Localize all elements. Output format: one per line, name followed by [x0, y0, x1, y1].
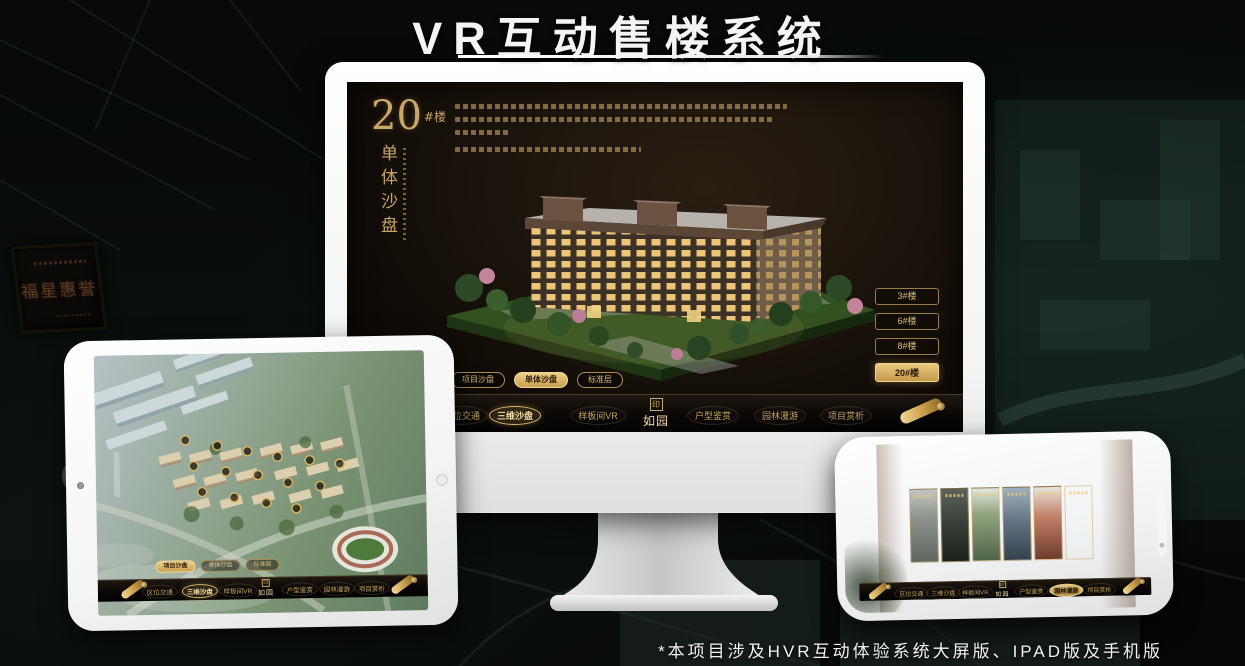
scroll-ornament-right-icon[interactable] — [390, 574, 416, 596]
nav-item-garden-tour[interactable]: 园林漫游 — [754, 406, 806, 425]
plaque-small-line — [34, 260, 86, 266]
title-underline — [458, 55, 884, 58]
nav-item-model-room-vr[interactable]: 样板间VR — [570, 406, 626, 425]
brand-seal-icon: 印 — [649, 398, 662, 411]
nav-item-project-appreciation[interactable]: 项目赏析 — [820, 406, 872, 425]
description-line — [455, 130, 511, 135]
phone-nav-item-floorplan[interactable]: 户型鉴赏 — [1014, 584, 1048, 598]
phone-brand-seal-icon: 印 — [999, 581, 1006, 588]
nav-item-floorplan[interactable]: 户型鉴赏 — [687, 406, 739, 425]
tablet-sandbox-submenu: 项目沙盘 单体沙盘 标准层 — [155, 559, 279, 573]
phone-nav-item-location-traffic[interactable]: 区位交通 — [894, 587, 928, 601]
building-number-suffix: #楼 — [424, 110, 446, 124]
floor-button-3[interactable]: 3#楼 — [875, 288, 939, 305]
floor-button-20[interactable]: 20#楼 — [875, 363, 939, 382]
description-line — [455, 117, 773, 122]
building-number: 20 — [371, 93, 422, 139]
brand-logo-text: 如园 — [643, 414, 669, 428]
gallery-card-autumn-scene[interactable] — [1033, 486, 1063, 561]
submenu-standard-floor[interactable]: 标准层 — [577, 372, 623, 388]
phone-scroll-ornament-right-icon[interactable] — [1122, 576, 1143, 595]
tablet-home-button[interactable] — [436, 474, 448, 486]
sandbox-submenu: 项目沙盘 单体沙盘 标准层 — [451, 372, 623, 388]
description-line — [455, 104, 787, 109]
gallery-card-building-facade[interactable] — [1002, 486, 1032, 561]
tablet-device: 项目沙盘 单体沙盘 标准层 区位交通 三维沙盘 样板间VR 印 如园 户型鉴赏 … — [63, 335, 458, 632]
submenu-single-building[interactable]: 单体沙盘 — [514, 372, 568, 388]
building-3d-render — [439, 138, 879, 393]
tablet-submenu-project-sandbox[interactable]: 项目沙盘 — [155, 560, 195, 573]
footnote-text: *本项目涉及HVR互动体验系统大屏版、IPAD版及手机版 — [658, 637, 1163, 662]
scene-gallery — [909, 485, 1094, 563]
tablet-submenu-standard-floor[interactable]: 标准层 — [245, 559, 279, 572]
gallery-card-courtyard[interactable] — [909, 488, 939, 563]
scroll-ornament-icon[interactable] — [898, 397, 943, 426]
phone-nav-item-3d-sandbox[interactable]: 三维沙盘 — [926, 586, 960, 600]
gallery-card-landscape[interactable] — [971, 487, 1001, 562]
phone-nav-item-project-appreciation[interactable]: 项目赏析 — [1082, 583, 1116, 597]
monitor-stand — [540, 511, 790, 617]
phone-brand-logo[interactable]: 印 如园 — [995, 581, 1009, 598]
phone-device: 区位交通 三维沙盘 样板间VR 印 如园 户型鉴赏 园林漫游 项目赏析 — [834, 431, 1174, 622]
phone-scroll-ornament-left-icon[interactable] — [868, 581, 889, 600]
tablet-nav-item-location-traffic[interactable]: 区位交通 — [142, 584, 178, 599]
heading-vertical-subtext — [403, 148, 406, 240]
phone-brand-logo-text: 如园 — [995, 591, 1009, 598]
submenu-project-sandbox[interactable]: 项目沙盘 — [451, 372, 505, 388]
floor-button-8[interactable]: 8#楼 — [875, 338, 939, 355]
plaque-signature-line — [56, 313, 90, 317]
tablet-nav-item-garden-tour[interactable]: 园林漫游 — [319, 581, 355, 596]
tablet-nav-item-model-room-vr[interactable]: 样板间VR — [218, 583, 257, 598]
nav-item-3d-sandbox[interactable]: 三维沙盘 — [489, 406, 541, 425]
floor-button-6[interactable]: 6#楼 — [875, 313, 939, 330]
page: 福星惠誉 VR互动售楼系统 20#楼 单体沙盘 — [0, 0, 1245, 666]
tablet-brand-logo-text: 如园 — [258, 589, 274, 597]
tablet-nav-item-floorplan[interactable]: 户型鉴赏 — [282, 582, 318, 597]
phone-notch — [1156, 490, 1166, 556]
watermark-circle — [62, 459, 97, 494]
screen-heading: 20#楼 — [371, 94, 446, 138]
gallery-card-interior-dark[interactable] — [940, 488, 970, 563]
floor-button-group: 3#楼 6#楼 8#楼 20#楼 — [875, 288, 939, 382]
phone-screen: 区位交通 三维沙盘 样板间VR 印 如园 户型鉴赏 园林漫游 项目赏析 — [842, 439, 1165, 614]
tablet-nav-item-project-appreciation[interactable]: 项目赏析 — [354, 581, 390, 596]
gallery-card-interior-shelves[interactable] — [1064, 485, 1094, 560]
tablet-nav-item-3d-sandbox[interactable]: 三维沙盘 — [182, 584, 218, 599]
phone-nav-item-model-room-vr[interactable]: 样板间VR — [957, 585, 994, 599]
tablet-submenu-single-building[interactable]: 单体沙盘 — [200, 559, 240, 572]
tablet-brand-logo[interactable]: 印 如园 — [258, 579, 274, 598]
plaque-text: 福星惠誉 — [19, 274, 98, 303]
tablet-screen: 项目沙盘 单体沙盘 标准层 区位交通 三维沙盘 样板间VR 印 如园 户型鉴赏 … — [94, 350, 428, 616]
phone-nav-item-garden-tour[interactable]: 园林漫游 — [1049, 583, 1083, 597]
background-plaque: 福星惠誉 — [11, 242, 108, 334]
brand-logo[interactable]: 印 如园 — [643, 398, 669, 429]
heading-vertical-text: 单体沙盘 — [375, 144, 400, 240]
tablet-brand-seal-icon: 印 — [262, 579, 270, 587]
